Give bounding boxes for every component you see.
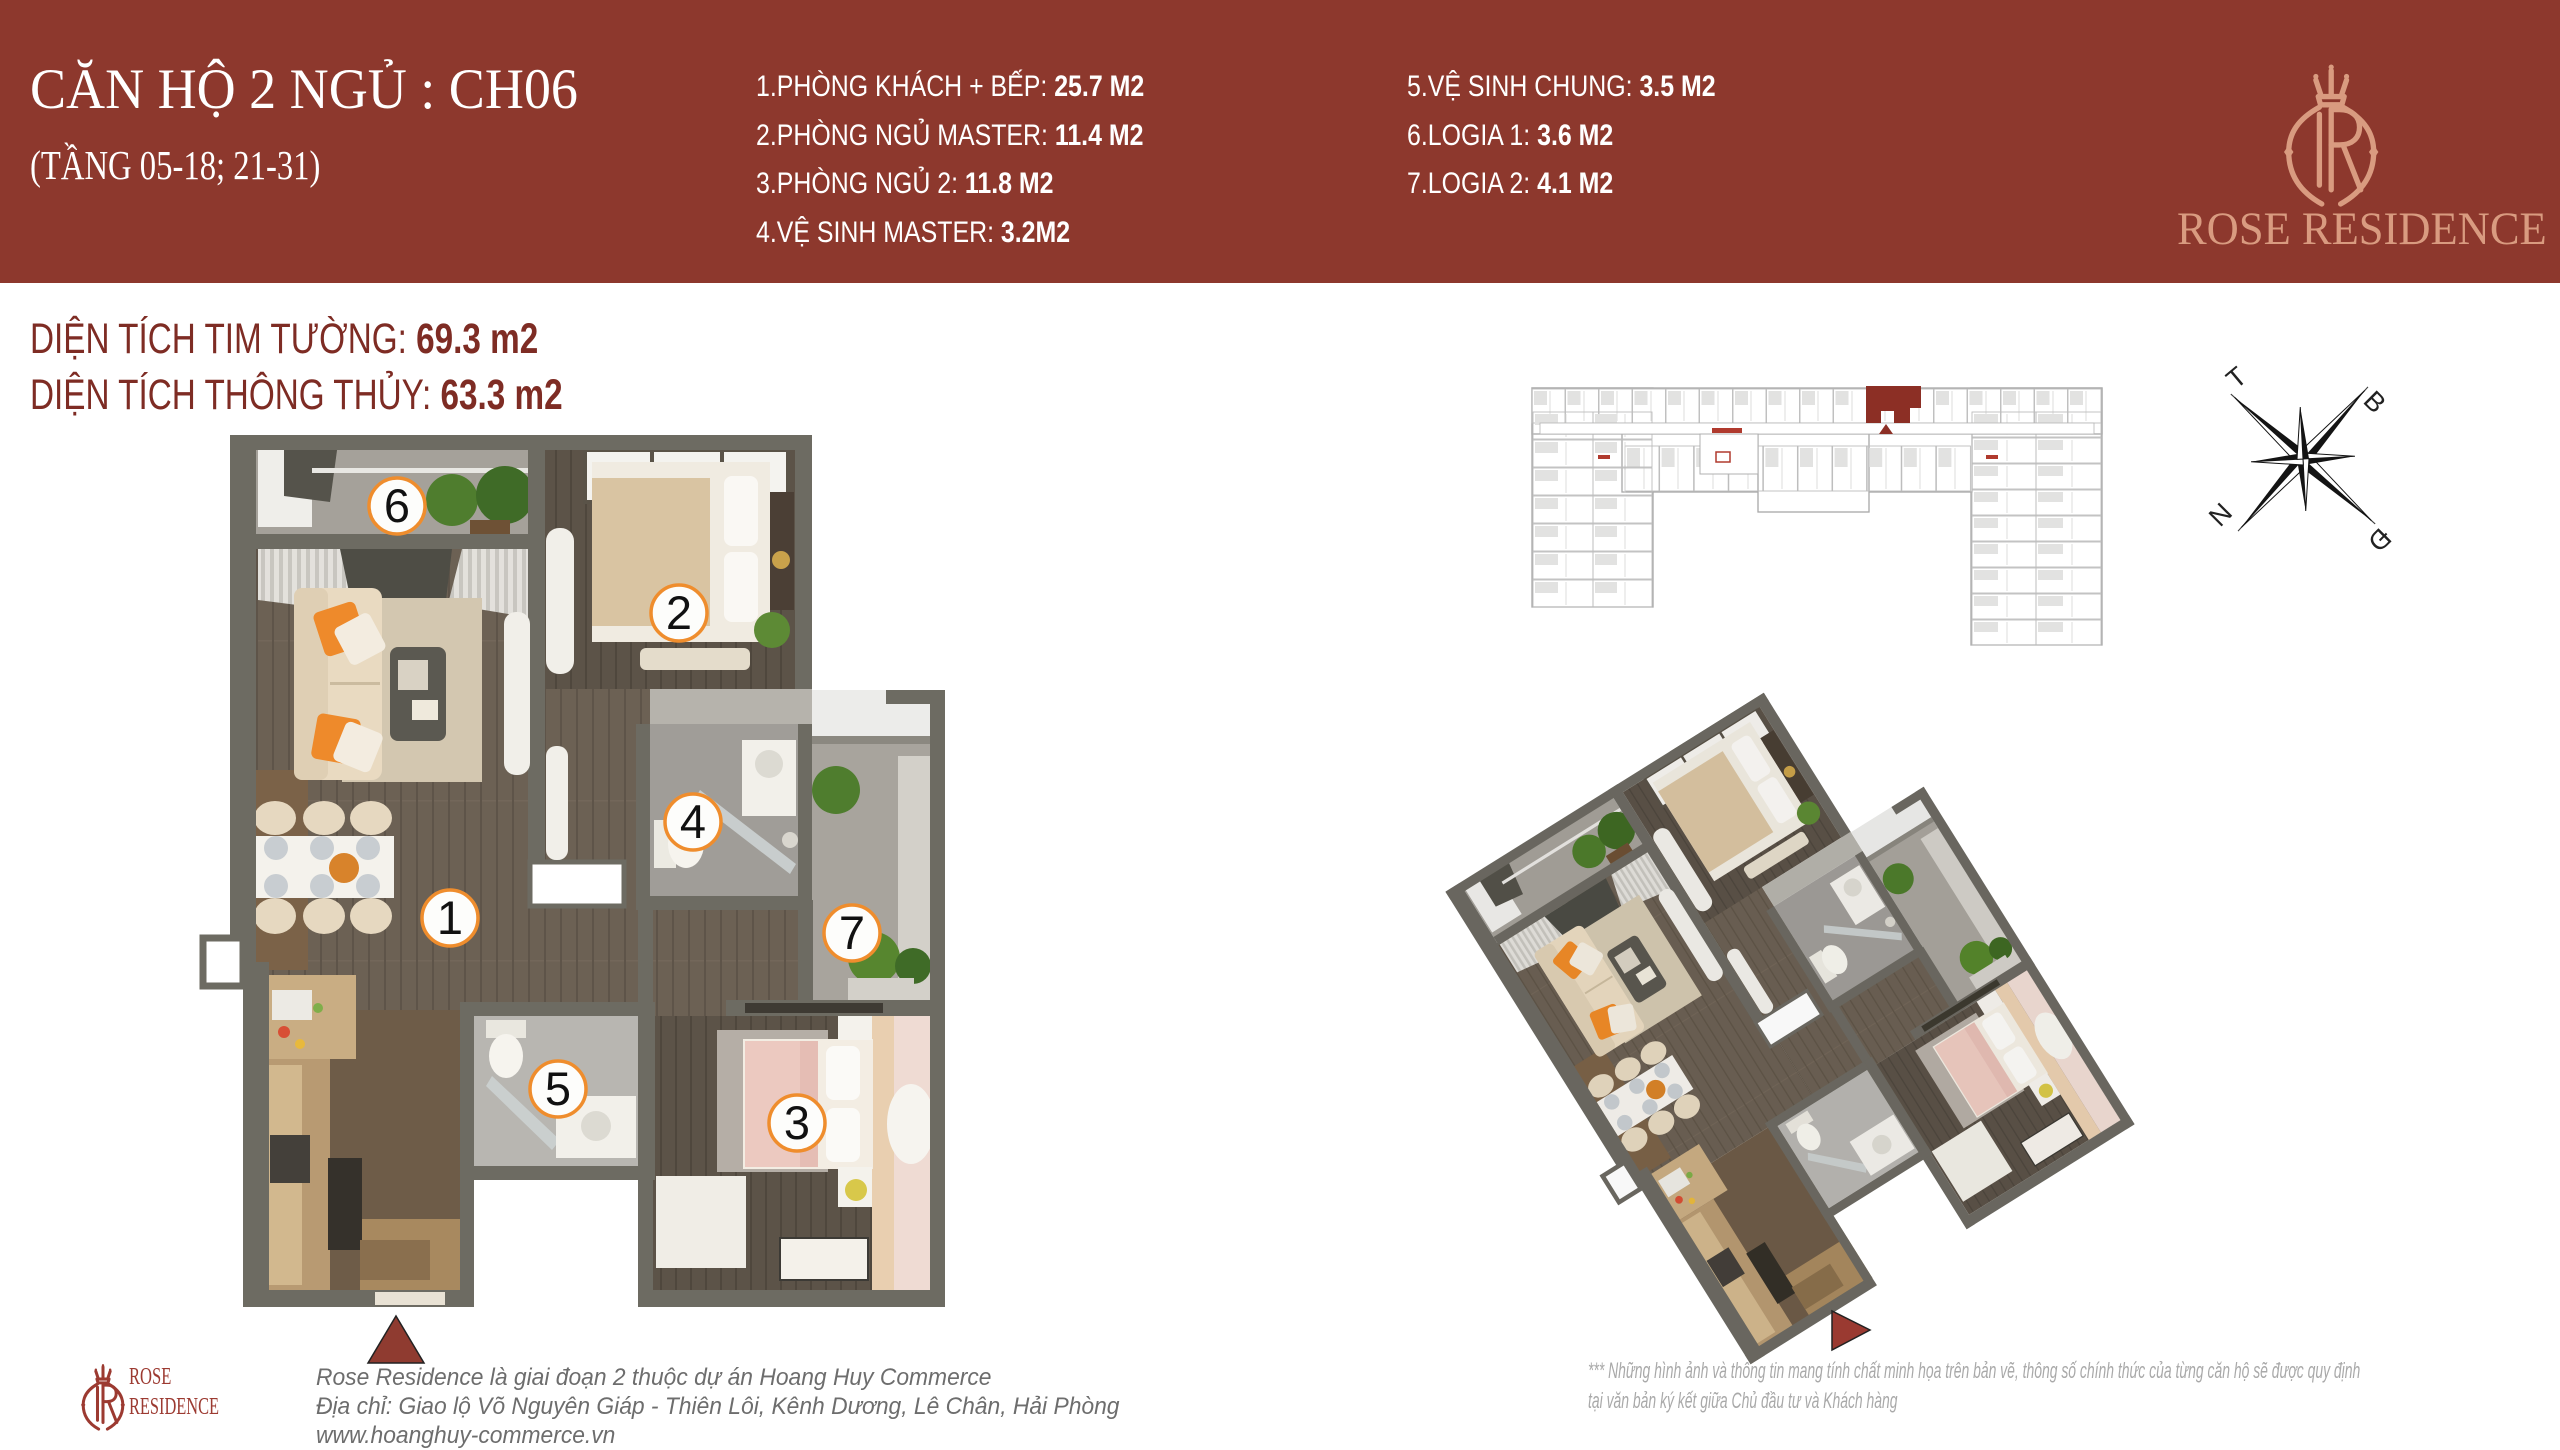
svg-text:6: 6 xyxy=(384,479,410,532)
svg-text:N: N xyxy=(2203,497,2238,532)
svg-text:B: B xyxy=(2358,385,2392,419)
svg-text:3: 3 xyxy=(784,1096,810,1149)
svg-text:4: 4 xyxy=(680,795,706,848)
svg-text:5: 5 xyxy=(545,1062,571,1115)
svg-text:1: 1 xyxy=(437,891,463,944)
svg-text:7: 7 xyxy=(839,906,865,959)
svg-text:Đ: Đ xyxy=(2362,522,2397,557)
svg-text:2: 2 xyxy=(666,586,692,639)
svg-text:T: T xyxy=(2221,361,2253,395)
